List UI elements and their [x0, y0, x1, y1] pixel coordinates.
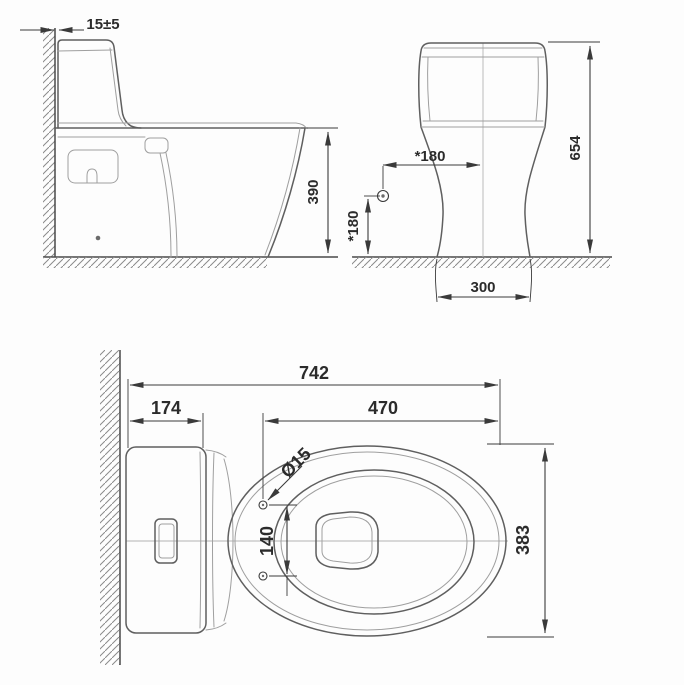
toilet-dimension-drawing: 15±5 390 [0, 0, 684, 685]
front-tank-inner-left [428, 57, 430, 121]
dim-bowl-height: 390 [305, 128, 338, 253]
dim-tank-depth-label: 174 [151, 398, 181, 418]
bolt-hole-bottom-dot [262, 575, 264, 577]
plan-tank-outline [126, 447, 206, 633]
side-floor-hatch [43, 257, 267, 268]
dim-bowl-width-label: 383 [513, 525, 533, 555]
dim-supply-horizontal-label: *180 [415, 148, 446, 165]
plan-outlet-outer [316, 512, 378, 569]
dim-wall-gap-label: 15±5 [86, 16, 119, 33]
dim-seat-length-label: 470 [368, 398, 398, 418]
side-fixing-dot [96, 236, 101, 241]
technical-drawing-page: 15±5 390 [0, 0, 684, 685]
supply-circle-dot [381, 194, 384, 197]
plan-bowl-opening-inner-line [281, 476, 467, 608]
plan-deck-bottom-edge [206, 623, 226, 630]
side-bowl-front-inner [265, 128, 300, 255]
dim-bolt-spacing-label: 140 [257, 526, 277, 556]
side-seat-hinge [145, 138, 168, 153]
plan-outlet-inner [322, 517, 372, 563]
front-tank-inner-right [536, 57, 538, 121]
dim-total-height-label: 654 [567, 135, 584, 161]
plan-deck [206, 450, 233, 630]
dim-base-width-label: 300 [470, 279, 495, 296]
side-view: 15±5 390 [20, 16, 338, 268]
dim-supply-vertical-label: *180 [345, 211, 362, 242]
front-view: *180 *180 654 300 [345, 42, 612, 302]
front-floor-hatch [352, 257, 610, 268]
dim-supply-horizontal: *180 [383, 148, 480, 189]
dim-total-height: 654 [548, 42, 600, 253]
side-access-panel [68, 150, 118, 183]
dim-bolt-hole-label: Ø15 [277, 444, 315, 482]
plan-deck-line [213, 453, 215, 627]
dim-supply-vertical: *180 [345, 196, 380, 254]
dim-total-length: 742 [128, 363, 500, 448]
plan-deck-top-edge [206, 450, 226, 457]
bolt-hole-top-dot [262, 504, 264, 506]
front-body-right [525, 127, 545, 257]
plan-bowl-opening [274, 470, 474, 614]
dim-bowl-height-label: 390 [305, 179, 322, 204]
side-bowl [55, 123, 307, 257]
side-wall-hatch [43, 28, 55, 257]
side-bowl-front-outer [268, 128, 305, 257]
side-tank-outline [58, 40, 141, 128]
dim-bowl-width: 383 [487, 444, 554, 637]
side-panel-notch [87, 169, 97, 183]
plan-view: 742 174 470 Ø15 140 [100, 350, 554, 665]
plan-tank [126, 447, 206, 633]
plan-wall-hatch [100, 350, 120, 665]
side-tank [58, 40, 141, 128]
side-pedestal-curve-outer [166, 153, 177, 257]
side-tank-inner-edge [110, 48, 126, 126]
side-tank-lid-line [58, 50, 112, 51]
dim-total-length-label: 742 [299, 363, 329, 383]
dim-tank-depth: 174 [130, 398, 203, 448]
front-body-left [421, 127, 443, 257]
plan-tank-lid-edge [200, 452, 201, 628]
dim-wall-gap: 15±5 [20, 16, 120, 33]
dim-bolt-hole-diameter: Ø15 [268, 444, 315, 500]
